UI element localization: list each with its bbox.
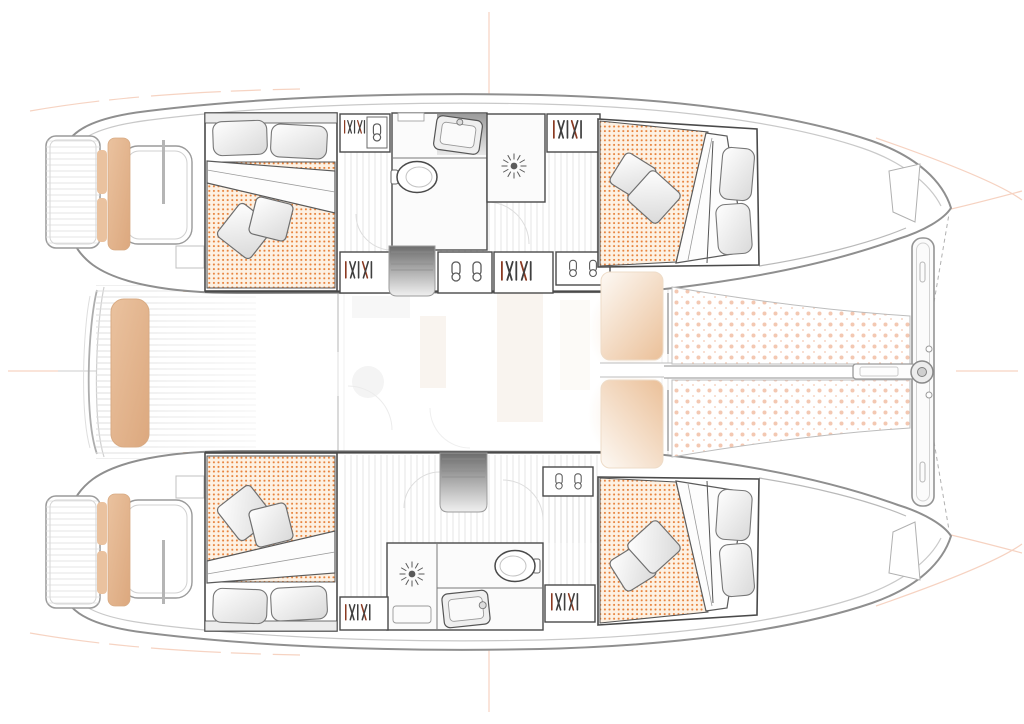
scatter-cushion — [248, 502, 294, 548]
corridor-floor — [543, 496, 600, 585]
port-aft-cabin — [205, 113, 337, 291]
transom-seat-cushion — [108, 138, 130, 250]
cockpit-bench-cushion — [111, 299, 149, 447]
entry-step — [176, 476, 204, 498]
bed-pillow — [270, 124, 328, 160]
port-wardrobe-aft — [340, 114, 390, 152]
bed-pillow — [212, 588, 267, 624]
step-pad — [97, 198, 107, 242]
starboard-shoe-locker — [543, 467, 593, 496]
sink-icon — [433, 115, 483, 155]
step-pad — [97, 502, 107, 545]
starboard-wardrobe-fwd — [545, 585, 595, 622]
beam-bolt — [926, 392, 932, 398]
bed-pillow — [212, 120, 267, 156]
port-hanging-locker — [340, 252, 390, 293]
port-shoe-locker — [438, 252, 492, 293]
bed-pillow — [715, 203, 752, 255]
starboard-hanging-locker — [340, 597, 388, 630]
starboard-forward-cabin — [598, 477, 759, 625]
foredeck-sunpad — [601, 272, 663, 360]
bed-pillow — [270, 586, 328, 622]
rail — [162, 140, 165, 204]
floorplan-page — [0, 0, 1024, 724]
port-hanging-locker-2 — [494, 252, 553, 293]
starboard-aft-cabin — [205, 453, 337, 631]
bed-pillow — [715, 489, 752, 541]
hull-window — [398, 113, 424, 121]
catamaran-floorplan — [0, 0, 1024, 724]
port-forward-cabin — [598, 119, 759, 267]
port-bathroom — [391, 113, 487, 250]
scatter-cushion — [248, 196, 294, 242]
port-wardrobe-fwd — [547, 114, 600, 152]
port-swim-platform — [46, 136, 100, 248]
step-pad — [97, 150, 107, 194]
rail — [162, 540, 165, 604]
starboard-swim-platform — [46, 496, 100, 608]
faucet — [479, 601, 487, 609]
beam-bolt — [926, 346, 932, 352]
step-pad — [97, 551, 107, 594]
bed-pillow — [719, 543, 755, 598]
companionway-stairs — [440, 453, 487, 512]
bed-pillow — [719, 147, 755, 202]
faucet — [456, 119, 463, 126]
aft-cockpit — [84, 268, 356, 476]
bridgedeck — [84, 268, 672, 476]
companionway-stairs — [389, 246, 435, 296]
shower-stall — [487, 114, 545, 202]
corridor-floor — [340, 543, 387, 597]
entry-step — [176, 246, 204, 268]
port-shower — [487, 114, 545, 202]
forestay-fitting-pin — [918, 368, 927, 377]
foredeck-sunpad — [601, 380, 663, 468]
bowsprit — [853, 364, 915, 379]
sink-icon — [441, 590, 490, 629]
starboard-bathroom — [387, 543, 543, 630]
transom-seat-cushion — [108, 494, 130, 606]
